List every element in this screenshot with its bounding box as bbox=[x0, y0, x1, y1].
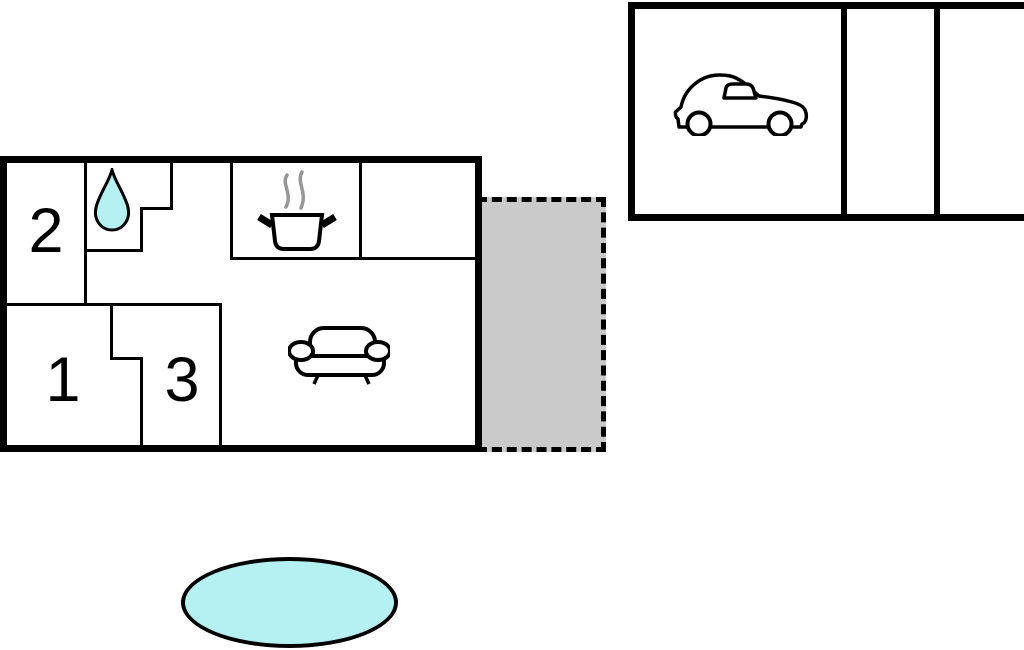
wall-room3-left-lower bbox=[140, 357, 143, 445]
car-icon bbox=[672, 70, 812, 136]
wall-garage-divider-2 bbox=[934, 2, 940, 221]
wall-bath-step-horizontal bbox=[140, 207, 173, 210]
main-building: 2 1 3 bbox=[0, 156, 482, 452]
sofa-icon bbox=[288, 322, 390, 387]
wall-outer-right bbox=[475, 156, 482, 452]
wall-kitchen-bottom bbox=[230, 257, 475, 260]
wall-kitchen-divider bbox=[359, 163, 362, 260]
wall-garage-left bbox=[628, 2, 635, 221]
wall-outer-top bbox=[0, 156, 482, 163]
pool bbox=[181, 557, 398, 648]
cooking-pot-icon bbox=[250, 167, 340, 257]
wall-garage-top bbox=[628, 2, 1024, 9]
room-3-label: 3 bbox=[152, 349, 212, 412]
wall-bath-right-upper bbox=[170, 163, 173, 210]
wall-room1-step-horizontal bbox=[110, 357, 143, 360]
terrace-area bbox=[477, 197, 606, 452]
wall-kitchen-left bbox=[230, 163, 233, 260]
room-2-label: 2 bbox=[16, 200, 76, 263]
floor-plan-canvas: 2 1 3 bbox=[0, 0, 1024, 650]
wall-bath-step-vertical bbox=[140, 207, 143, 252]
wall-room3-right bbox=[219, 303, 222, 445]
garage-building bbox=[628, 2, 1024, 221]
wall-garage-divider-1 bbox=[841, 2, 847, 221]
wall-room2-right bbox=[84, 163, 87, 306]
wall-outer-bottom bbox=[0, 445, 482, 452]
room-1-label: 1 bbox=[33, 349, 93, 412]
wall-room1-divider-upper bbox=[110, 303, 113, 360]
water-drop-icon bbox=[93, 168, 131, 232]
wall-garage-bottom bbox=[628, 214, 1024, 221]
wall-bath-bottom bbox=[86, 249, 143, 252]
